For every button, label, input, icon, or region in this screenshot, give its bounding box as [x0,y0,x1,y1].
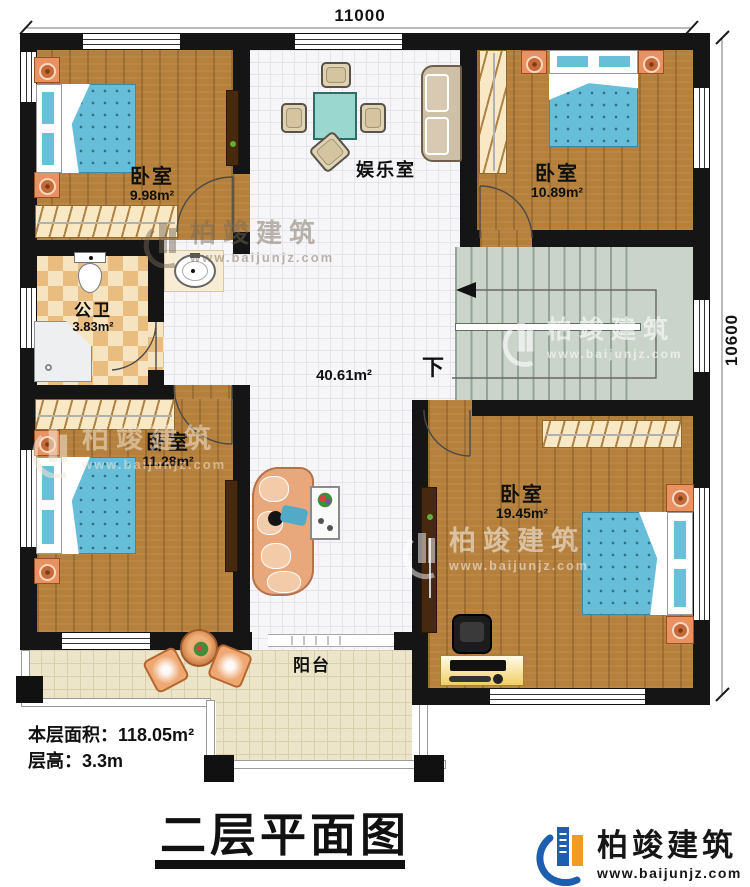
plant-icon [230,141,236,147]
tv-cabinet [440,655,524,686]
wardrobe-rail [493,53,495,171]
office-chair [452,614,492,654]
chair-seat [315,137,345,166]
nightstand [638,50,664,74]
nightstand [521,50,547,74]
room-label-bedroom-bl: 卧室 11.28m² [142,432,193,470]
nightstand [34,172,60,198]
floor-height-label: 层高： [28,751,82,771]
nightstand [34,558,60,584]
knob-icon [672,622,689,639]
pillow [40,464,56,502]
knob-icon [39,63,56,80]
bed-tl [36,84,136,173]
cabinet-bedroom-tl [226,90,239,166]
chair [321,62,351,88]
room-name: 卧室 [142,432,193,454]
room-name: 卧室 [130,166,174,188]
speaker-icon [493,674,503,684]
floor-height-line: 层高：3.3m [28,748,194,774]
wardrobe-rail [38,415,172,417]
wardrobe-bedroom-bl [35,399,175,430]
room-area: 9.98m² [130,188,174,204]
sofa-cushion [425,74,449,112]
wardrobe-rail [545,434,679,436]
room-area: 11.28m² [142,454,193,470]
doorway-bedroom-tr [480,230,532,247]
stairs-upper-flight [455,247,641,323]
wall-bedroom-tl-right-lower [233,230,250,254]
room-label-balcony: 阳台 [293,656,331,675]
doorway-bedroom-bl [174,385,232,399]
chair [281,103,307,133]
bed-bl [36,457,136,554]
page-title: 二层平面图 [160,799,410,865]
tv-icon [450,660,506,671]
room-name: 公卫 [72,301,113,320]
window-right-bedroom-br [693,488,710,620]
wall-bedroom-tr-bottom-jamb [460,230,480,247]
pillow [40,508,56,546]
balcony-wall-step-top [21,698,211,707]
sofa-entertainment [421,65,462,162]
room-area: 10.89m² [531,185,583,201]
person-body [280,504,309,526]
room-area: 3.83m² [72,320,113,335]
bed-headboard [667,512,693,615]
faucet-icon [190,253,200,258]
wardrobe-rail [38,222,175,224]
window-top-bedroom-tl [83,33,180,50]
bed-br [582,512,693,615]
window-left-bedroom-bl [20,450,37,547]
window-bottom-bedroom-bl [62,632,150,650]
cabinet-bedroom-bl [225,480,238,572]
room-label-bedroom-tl: 卧室 9.98m² [130,166,174,204]
chair-seat [286,108,302,128]
balcony-wall-step-side [206,700,215,762]
brand-name: 柏竣建筑 [597,830,742,861]
window-bottom-bedroom-br [490,688,645,705]
balcony-door-threshold [268,634,394,647]
floor-area-label: 本层面积： [28,725,118,745]
doorway-bathroom [148,322,164,370]
sink-counter [164,250,224,292]
wardrobe-bedroom-tl [35,205,178,238]
wall-bathroom-bottom [20,385,174,399]
wall-bathroom-right-upper [148,240,164,322]
floor-area-value: 118.05m² [118,725,194,745]
brand-logo-icon [536,824,590,886]
knob-icon [643,56,660,73]
plant-icon [427,514,433,520]
sink-basin [182,261,208,281]
flower-icon [317,492,333,508]
chair [360,103,386,133]
wall-bedroom-tr-bottom [532,230,710,247]
sink-drain-icon [191,269,195,273]
pillow [597,54,632,69]
pillow [40,90,56,126]
sofa-cushion [259,476,289,502]
wardrobe-bedroom-br [542,420,682,448]
knob-icon [39,178,56,195]
stairs-down-label: 下 [422,350,444,382]
sofa-cushion [261,543,291,569]
wall-balcony-door-jamb [394,632,412,650]
pillow [672,519,688,561]
doorway-bedroom-tl [233,174,250,232]
room-area: 40.61m² [316,368,372,385]
room-area: 19.45m² [496,506,548,522]
knob-icon [672,490,689,507]
flower-icon [193,641,209,657]
toilet [74,252,106,294]
pillow [672,567,688,609]
desk-bedroom-br [421,487,437,633]
wardrobe-bedroom-tr [479,50,507,174]
floor-area-line: 本层面积：118.05m² [28,722,194,748]
toilet-tank [74,252,106,263]
room-label-hall: 40.61m² [316,368,372,385]
nightstand [666,484,694,512]
chair-seat [326,67,346,83]
window-right-stairs [693,300,710,372]
remote-icon [449,676,491,682]
floor-stats: 本层面积：118.05m² 层高：3.3m [28,722,194,774]
floor-plan-page: 卧室 9.98m² 娱乐室 卧室 10.89m² 公卫 3.83m² 40.61… [0,0,750,887]
nightstand [666,616,694,644]
bed-headboard [36,84,62,173]
bed-headboard [36,457,62,554]
wall-bedroom-br-top [472,400,693,416]
shower-drain-icon [45,364,52,371]
room-label-bedroom-br: 卧室 19.45m² [496,484,548,522]
chair-seat [460,622,484,642]
sofa-cushion [425,117,449,155]
wall-entertainment-bedroom-tr [460,33,477,247]
brand-block: 柏竣建筑 www.baijunjz.com [536,824,742,886]
room-name: 娱乐室 [356,160,416,180]
brand-url: www.baijunjz.com [597,865,742,881]
toilet-button-icon [89,256,93,260]
bowl-icon [318,518,324,524]
window-right-bedroom-tr [693,88,710,168]
knob-icon [526,56,543,73]
room-name: 卧室 [531,163,583,185]
bowl-icon [327,525,333,531]
dimension-top: 11000 [322,6,398,26]
floor-height-value: 3.3m [82,751,123,771]
toilet-bowl [78,263,102,293]
bed-tr [549,50,638,147]
stairs-handrail [455,323,641,331]
sink [174,254,216,288]
chair-seat [365,108,381,128]
room-name: 阳台 [293,656,331,675]
room-label-bathroom: 公卫 3.83m² [72,301,113,335]
pillow [40,131,56,167]
desk-monitor [429,538,431,598]
bed-headboard [549,50,638,74]
room-label-bedroom-tr: 卧室 10.89m² [531,163,583,201]
window-top-entertainment [295,33,402,50]
stairs-lower-flight [455,331,641,400]
balcony-wall-bottom [210,760,446,769]
sofa-hall [252,467,314,596]
nightstand [34,430,60,456]
sofa-cushion [267,571,301,593]
balcony-wall-right [419,702,428,762]
balcony-post-right [414,755,444,782]
coffee-table [310,486,340,540]
title-underline [155,860,405,869]
knob-icon [39,564,56,581]
balcony-post-left [16,676,43,703]
knob-icon [39,436,56,453]
room-name: 卧室 [496,484,548,506]
nightstand [34,57,60,83]
balcony-post-middle [204,755,234,782]
room-label-entertainment: 娱乐室 [356,160,416,180]
dimension-right: 10600 [722,298,742,382]
pillow [555,54,590,69]
